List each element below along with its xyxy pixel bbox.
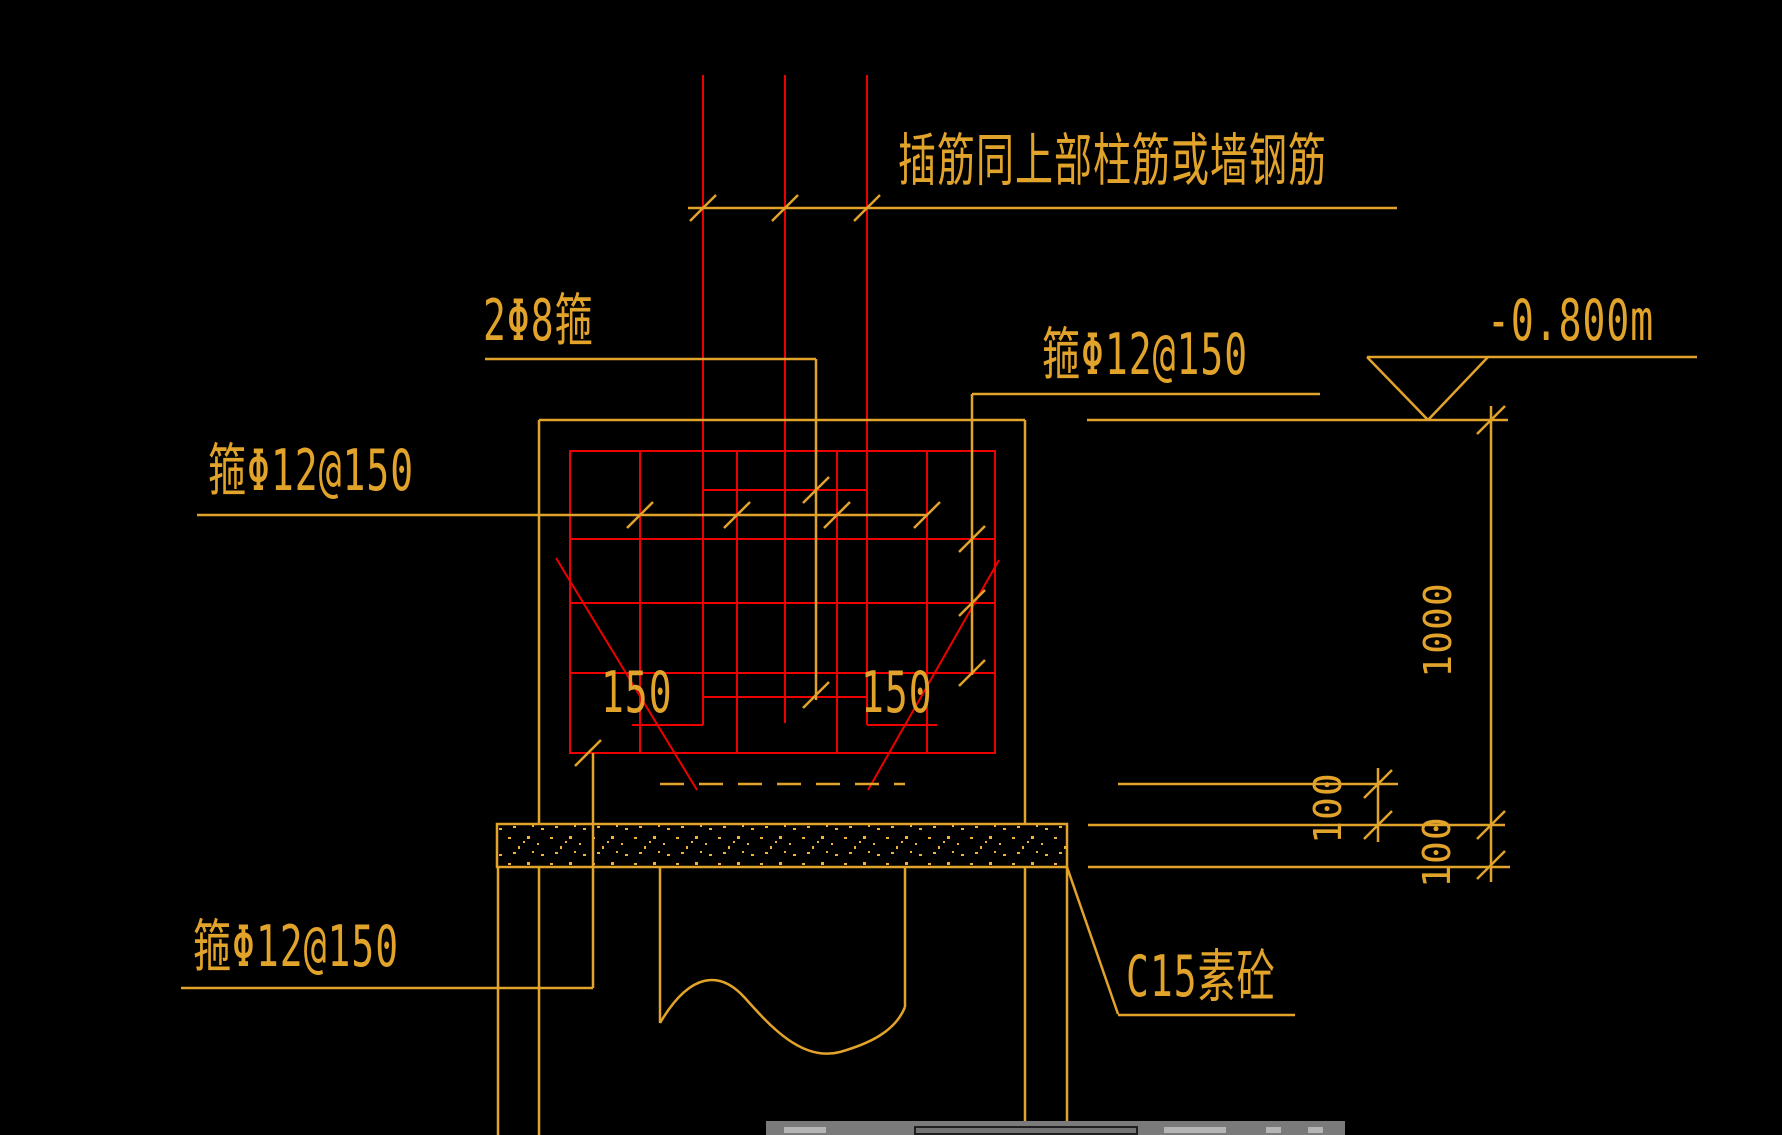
command-bar-text-fragment [1164, 1127, 1226, 1133]
dowel-note-label: 插筋同上部柱筋或墙钢筋 [898, 132, 1327, 192]
column-dowel-bars [703, 75, 867, 723]
spacing-right-150-label: 150 [861, 664, 933, 724]
command-bar-button-fragment[interactable] [1266, 1127, 1281, 1133]
cad-canvas[interactable]: 插筋同上部柱筋或墙钢筋 2Φ8箍 箍Φ12@150 箍Φ12@150 箍Φ12@… [0, 0, 1782, 1135]
dim-100-upper-label: 100 [1306, 772, 1350, 844]
footing-outline [539, 420, 1025, 1135]
leader-tie-2phi8 [485, 359, 829, 708]
leader-stirrup-top-right [959, 394, 1320, 686]
dim-1000-label: 1000 [1416, 582, 1460, 678]
stirrup-left-label: 箍Φ12@150 [208, 442, 414, 502]
stirrup-horizontals [570, 490, 995, 673]
command-bar-text-fragment [784, 1127, 826, 1133]
command-bar [766, 1121, 1345, 1135]
elevation-symbol [1367, 357, 1697, 420]
trench-lines [498, 867, 1067, 1135]
stirrup-bottom-left-label: 箍Φ12@150 [193, 918, 399, 978]
leader-stirrup-left [197, 502, 940, 528]
stirrup-top-right-label: 箍Φ12@150 [1042, 326, 1248, 386]
command-input[interactable] [914, 1126, 1138, 1135]
dim-100-lower-label: 100 [1415, 816, 1459, 888]
command-bar-button-fragment[interactable] [1308, 1127, 1323, 1133]
cushion-band [497, 824, 1067, 867]
cushion-material-label: C15素砼 [1126, 948, 1276, 1008]
tie-2phi8-label: 2Φ8箍 [483, 292, 594, 352]
break-wave [660, 980, 905, 1054]
spacing-left-150-label: 150 [601, 664, 673, 724]
elevation-value-label: -0.800m [1487, 292, 1654, 352]
leader-dowel-note [688, 195, 1397, 221]
